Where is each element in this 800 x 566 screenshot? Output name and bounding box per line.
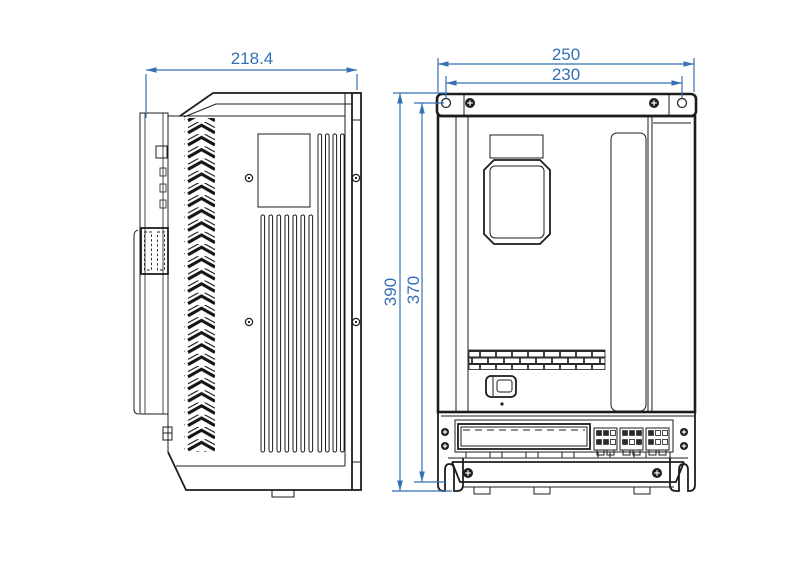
chevron-vent-strip [184,118,215,452]
mounting-hole-top-right [678,99,687,108]
bracket-clip [156,146,167,158]
dimension-label-front-width-mounting: 230 [552,65,580,84]
usb-port [486,376,516,397]
front-base [448,452,688,494]
keypad [484,135,550,244]
dimension-drawing-canvas: 218.4 250 230 390 370 [0,0,800,566]
dimension-front-height-mounting: 370 [404,103,446,482]
dimension-label-front-height-outer: 390 [381,278,400,306]
side-view [134,93,361,497]
mounting-bracket [134,113,172,440]
screw-top-left [465,98,475,108]
terminal-cover-slot [458,424,590,449]
keypad-label [490,135,543,158]
terminal-block-group-3 [646,428,669,455]
terminal-section [441,412,694,455]
side-foot [272,490,294,497]
top-mounting-bar [437,94,696,116]
terminal-block-group-2 [620,428,643,455]
dimension-label-side-depth: 218.4 [231,49,274,68]
front-foot [634,487,650,494]
screw-top-right [649,98,659,108]
side-front-bezel [352,93,361,490]
dimension-side-depth: 218.4 [146,49,357,118]
dimension-label-front-width-outer: 250 [552,45,580,64]
terminal-block-group-1 [594,428,617,455]
base-screws [463,468,662,478]
brick-vent-strip [469,350,605,370]
small-screw-mark [500,402,503,405]
side-nameplate [258,134,310,207]
side-vents-lower [261,215,313,452]
technical-drawing: 218.4 250 230 390 370 [0,0,800,566]
front-foot [534,487,550,494]
right-side-panel [611,133,646,411]
mounting-tab-bottom-right [670,412,695,491]
front-view [437,94,696,494]
dimension-annotations: 218.4 250 230 390 370 [146,45,694,491]
keypad-display [490,166,544,238]
dimension-label-front-height-mounting: 370 [404,276,423,304]
side-vents-upper [318,134,344,452]
front-foot [474,487,490,494]
side-screw-holes [245,174,359,325]
keypad-bezel [484,160,550,244]
